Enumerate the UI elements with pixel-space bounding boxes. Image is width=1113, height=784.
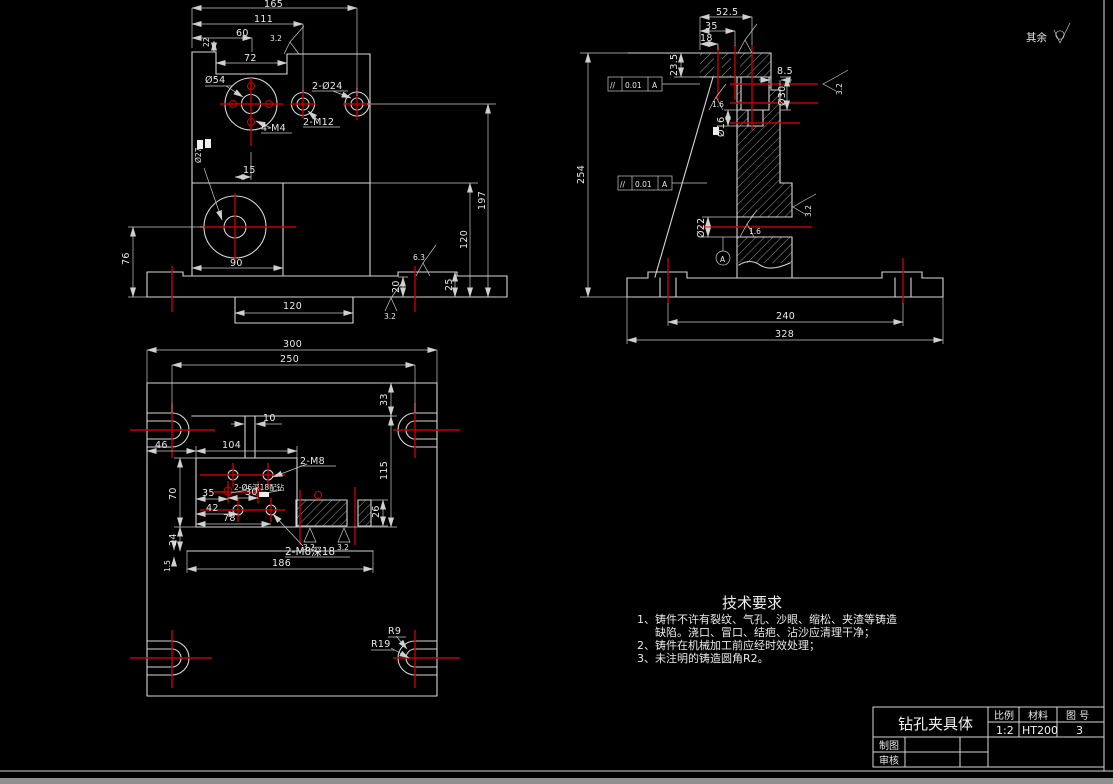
tech-line-1: 1、铸件不许有裂纹、气孔、沙眼、缩松、夹渣等铸造 — [637, 612, 897, 626]
scale-value: 1:2 — [996, 724, 1014, 737]
drawing-no-value: 3 — [1076, 724, 1083, 737]
material-label: 材料 — [1028, 709, 1048, 722]
dim-60: 60 — [236, 28, 249, 39]
parallelism-frame-1: // 0.01 A — [608, 77, 700, 91]
tech-line-4: 3、未注明的铸造圆角R2。 — [637, 651, 769, 665]
title-block: 钻孔夹具体 比例 材料 图 号 1:2 HT200 3 制图 审核 — [873, 707, 1104, 767]
dim-24: 24 — [168, 533, 179, 546]
dim-165: 165 — [264, 0, 283, 10]
dim-197: 197 — [477, 191, 488, 210]
finish-3-2-b: 3.2 — [804, 205, 813, 217]
dim-46: 46 — [155, 440, 168, 451]
finish-3-2-top: 3.2 — [270, 34, 282, 43]
tech-line-3: 2、铸件在机械加工前应经时效处理； — [637, 638, 820, 652]
label-2-m8: 2-M8 — [300, 456, 325, 467]
dim-250: 250 — [280, 354, 299, 365]
dim-35s: 35 — [705, 21, 718, 32]
dim-76: 76 — [121, 252, 132, 265]
drawn-by-label: 制图 — [879, 739, 899, 752]
dim-10: 10 — [263, 413, 276, 424]
finish-3-2-bottom: 3.2 — [384, 312, 396, 321]
dim-186: 186 — [272, 558, 291, 569]
finish-3-2-right: 3.2 — [337, 543, 349, 552]
dim-1-5: 1.5 — [163, 560, 172, 572]
glyph-block — [259, 492, 269, 497]
top-view: 300 250 33 10 46 104 2-M8 115 2-Ø6深18配钻 … — [130, 339, 460, 696]
front-view: 165 111 60 22 72 3.2 Ø54 2-Ø24 2-M12 4-M… — [121, 0, 507, 323]
checked-by-label: 审核 — [879, 754, 899, 767]
finish-1-6-a: 1.6 — [712, 100, 724, 109]
dim-120-pad: 120 — [283, 301, 302, 312]
finish-3-2-a: 3.2 — [835, 83, 844, 95]
dim-42: 42 — [206, 503, 219, 514]
dim-30: 30 — [245, 487, 258, 498]
dim-104: 104 — [222, 440, 241, 451]
dim-115: 115 — [379, 461, 390, 480]
finish-6-3: 6.3 — [413, 253, 425, 262]
label-2-m12: 2-M12 — [303, 117, 334, 128]
tol2-value: 0.01 — [635, 180, 652, 189]
dim-8-5: 8.5 — [777, 66, 793, 77]
cad-canvas: 其余 — [0, 0, 1113, 784]
label-r19: R19 — [371, 639, 391, 650]
tol2-symbol: // — [620, 180, 626, 189]
dim-78: 78 — [223, 513, 236, 524]
part-name: 钻孔夹具体 — [898, 715, 973, 733]
side-view: // 0.01 A // 0.01 A A 52.5 35 18 23.5 8.… — [576, 7, 943, 344]
sheet-bottom-edge — [0, 778, 1113, 784]
dim-26: 26 — [371, 505, 382, 518]
label-dia27: Ø27 — [194, 147, 203, 163]
parallelism-frame-2: // 0.01 A — [618, 176, 707, 190]
dim-23-5: 23.5 — [669, 54, 680, 76]
dim-15: 15 — [243, 165, 256, 176]
front-centerlines — [172, 78, 415, 312]
top-finish-symbols — [304, 528, 350, 542]
label-4-m4: 4-M4 — [261, 123, 286, 134]
dim-18: 18 — [700, 33, 713, 44]
drawing-sheet: 其余 — [0, 0, 1113, 784]
dim-90: 90 — [230, 258, 243, 269]
tech-title: 技术要求 — [722, 594, 782, 612]
tol2-datum: A — [662, 180, 668, 189]
corner-finish-note: 其余 — [1026, 23, 1070, 44]
sheet-border — [0, 0, 1113, 784]
front-extension-lines — [128, 8, 507, 297]
dim-dia16: Ø16 — [716, 117, 727, 137]
dim-20: 20 — [391, 280, 402, 293]
dim-25: 25 — [444, 278, 455, 291]
dim-dia22: Ø22 — [696, 218, 707, 238]
label-dia54: Ø54 — [205, 75, 225, 86]
top-hatch — [296, 500, 371, 526]
material-value: HT200 — [1022, 724, 1058, 737]
tol1-datum: A — [652, 81, 658, 90]
tol1-value: 0.01 — [625, 81, 642, 90]
dim-72: 72 — [244, 53, 257, 64]
label-pin-holes: 2-Ø6深18配钻 — [234, 482, 285, 492]
tech-requirements: 技术要求 1、铸件不许有裂纹、气孔、沙眼、缩松、夹渣等铸造 缺陷。浇口、冒口、结… — [637, 594, 897, 665]
dim-300: 300 — [283, 339, 302, 350]
dim-35t: 35 — [202, 488, 215, 499]
drawing-no-label: 图 号 — [1066, 710, 1089, 722]
scale-label: 比例 — [994, 709, 1014, 722]
front-holes — [204, 78, 369, 258]
dim-52-5: 52.5 — [716, 7, 738, 18]
finish-3-2-left: 3.2 — [303, 543, 315, 552]
dim-111: 111 — [254, 14, 273, 25]
dim-240: 240 — [776, 311, 795, 322]
front-leaders — [204, 86, 351, 220]
dim-328: 328 — [775, 329, 794, 340]
dim-254: 254 — [576, 165, 587, 184]
datum-a-letter: A — [720, 255, 726, 264]
datum-a-symbol: A — [716, 237, 730, 265]
corner-note-text: 其余 — [1026, 31, 1048, 44]
tol1-symbol: // — [610, 81, 616, 90]
dim-22: 22 — [202, 37, 211, 47]
dim-33: 33 — [379, 393, 390, 406]
front-finish-symbols — [284, 26, 436, 311]
label-r9: R9 — [388, 626, 401, 637]
tech-line-2: 缺陷。浇口、冒口、结疤、沾沙应清理干净； — [655, 625, 875, 639]
label-2-dia24: 2-Ø24 — [312, 81, 343, 92]
finish-1-6-b: 1.6 — [749, 227, 761, 236]
glyph-block — [205, 139, 211, 148]
surface-finish-circle-icon — [1056, 31, 1064, 39]
dim-120-right: 120 — [459, 230, 470, 249]
dim-70: 70 — [168, 487, 179, 500]
dim-dia30: Ø30 — [777, 86, 788, 106]
